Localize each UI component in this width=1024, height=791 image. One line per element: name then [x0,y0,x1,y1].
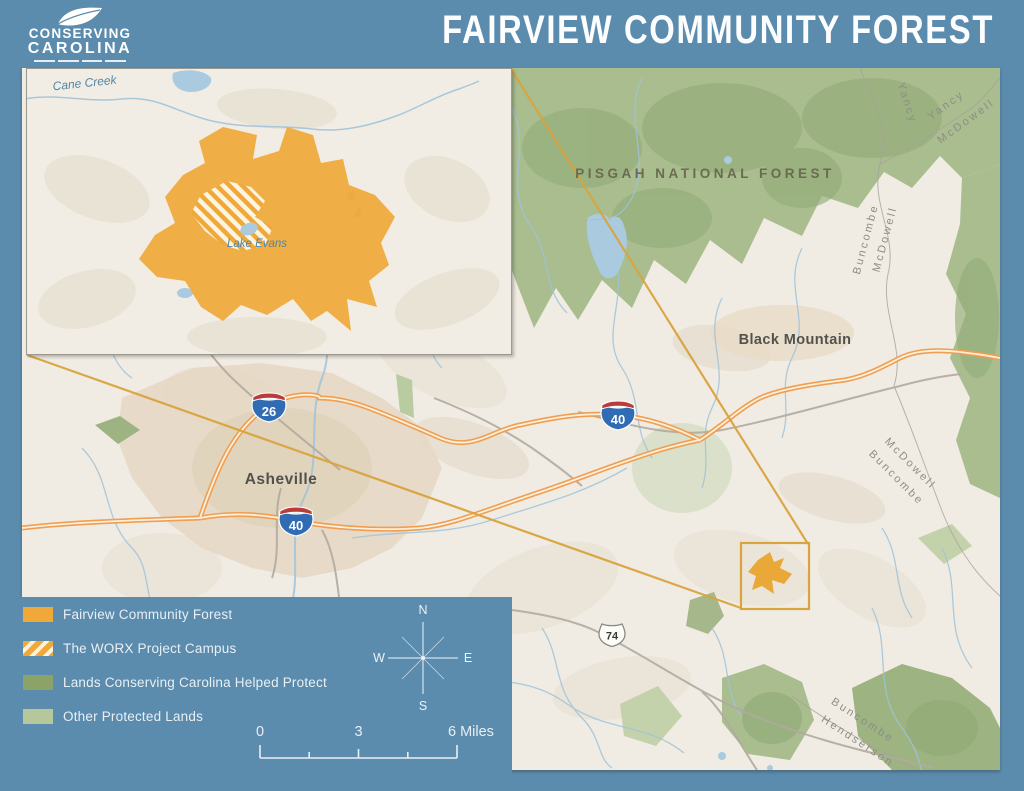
logo-tagline [34,60,126,62]
legend-label: Lands Conserving Carolina Helped Protect [63,675,327,690]
helped-protect-swatch [23,675,53,690]
legend-label: Other Protected Lands [63,709,203,724]
scale-bar: 0 3 6 Miles [248,720,504,775]
svg-text:40: 40 [289,518,303,533]
scale-zero-label: 0 [256,724,264,740]
compass-rose: N S W E [372,600,476,721]
legend-label: Fairview Community Forest [63,607,232,622]
inset-map: Lake Evans Cane Creek [26,68,512,355]
legend-item-fairview: Fairview Community Forest [23,607,327,622]
svg-text:40: 40 [611,412,625,427]
svg-text:74: 74 [606,631,619,643]
asheville-label: Asheville [245,471,318,488]
poster-title: FAIRVIEW COMMUNITY FOREST [442,8,994,53]
logo-line1: CONSERVING [18,27,142,41]
scale-end-label: 6 Miles [448,724,494,740]
map-poster: CONSERVING CAROLINA FAIRVIEW COMMUNITY F… [0,0,1024,791]
leaf-icon [54,5,106,27]
pisgah-forest-label: PISGAH NATIONAL FOREST [575,166,835,181]
compass-west-label: W [373,651,385,665]
fairview-swatch [23,607,53,622]
scale-mid-label: 3 [354,724,362,740]
compass-south-label: S [419,699,427,713]
lake-evans-label: Lake Evans [227,238,287,250]
logo-line2: CAROLINA [18,41,142,57]
svg-text:26: 26 [262,404,276,419]
legend-label: The WORX Project Campus [63,641,236,656]
conserving-carolina-logo: CONSERVING CAROLINA [18,5,142,62]
legend-item-helped-protect: Lands Conserving Carolina Helped Protect [23,675,327,690]
black-mountain-label: Black Mountain [739,332,852,348]
other-protected-swatch [23,709,53,724]
compass-north-label: N [418,603,427,617]
legend-item-worx: The WORX Project Campus [23,641,327,656]
us-74-shield: 74 [599,624,625,647]
worx-swatch [23,641,53,656]
compass-east-label: E [464,651,472,665]
